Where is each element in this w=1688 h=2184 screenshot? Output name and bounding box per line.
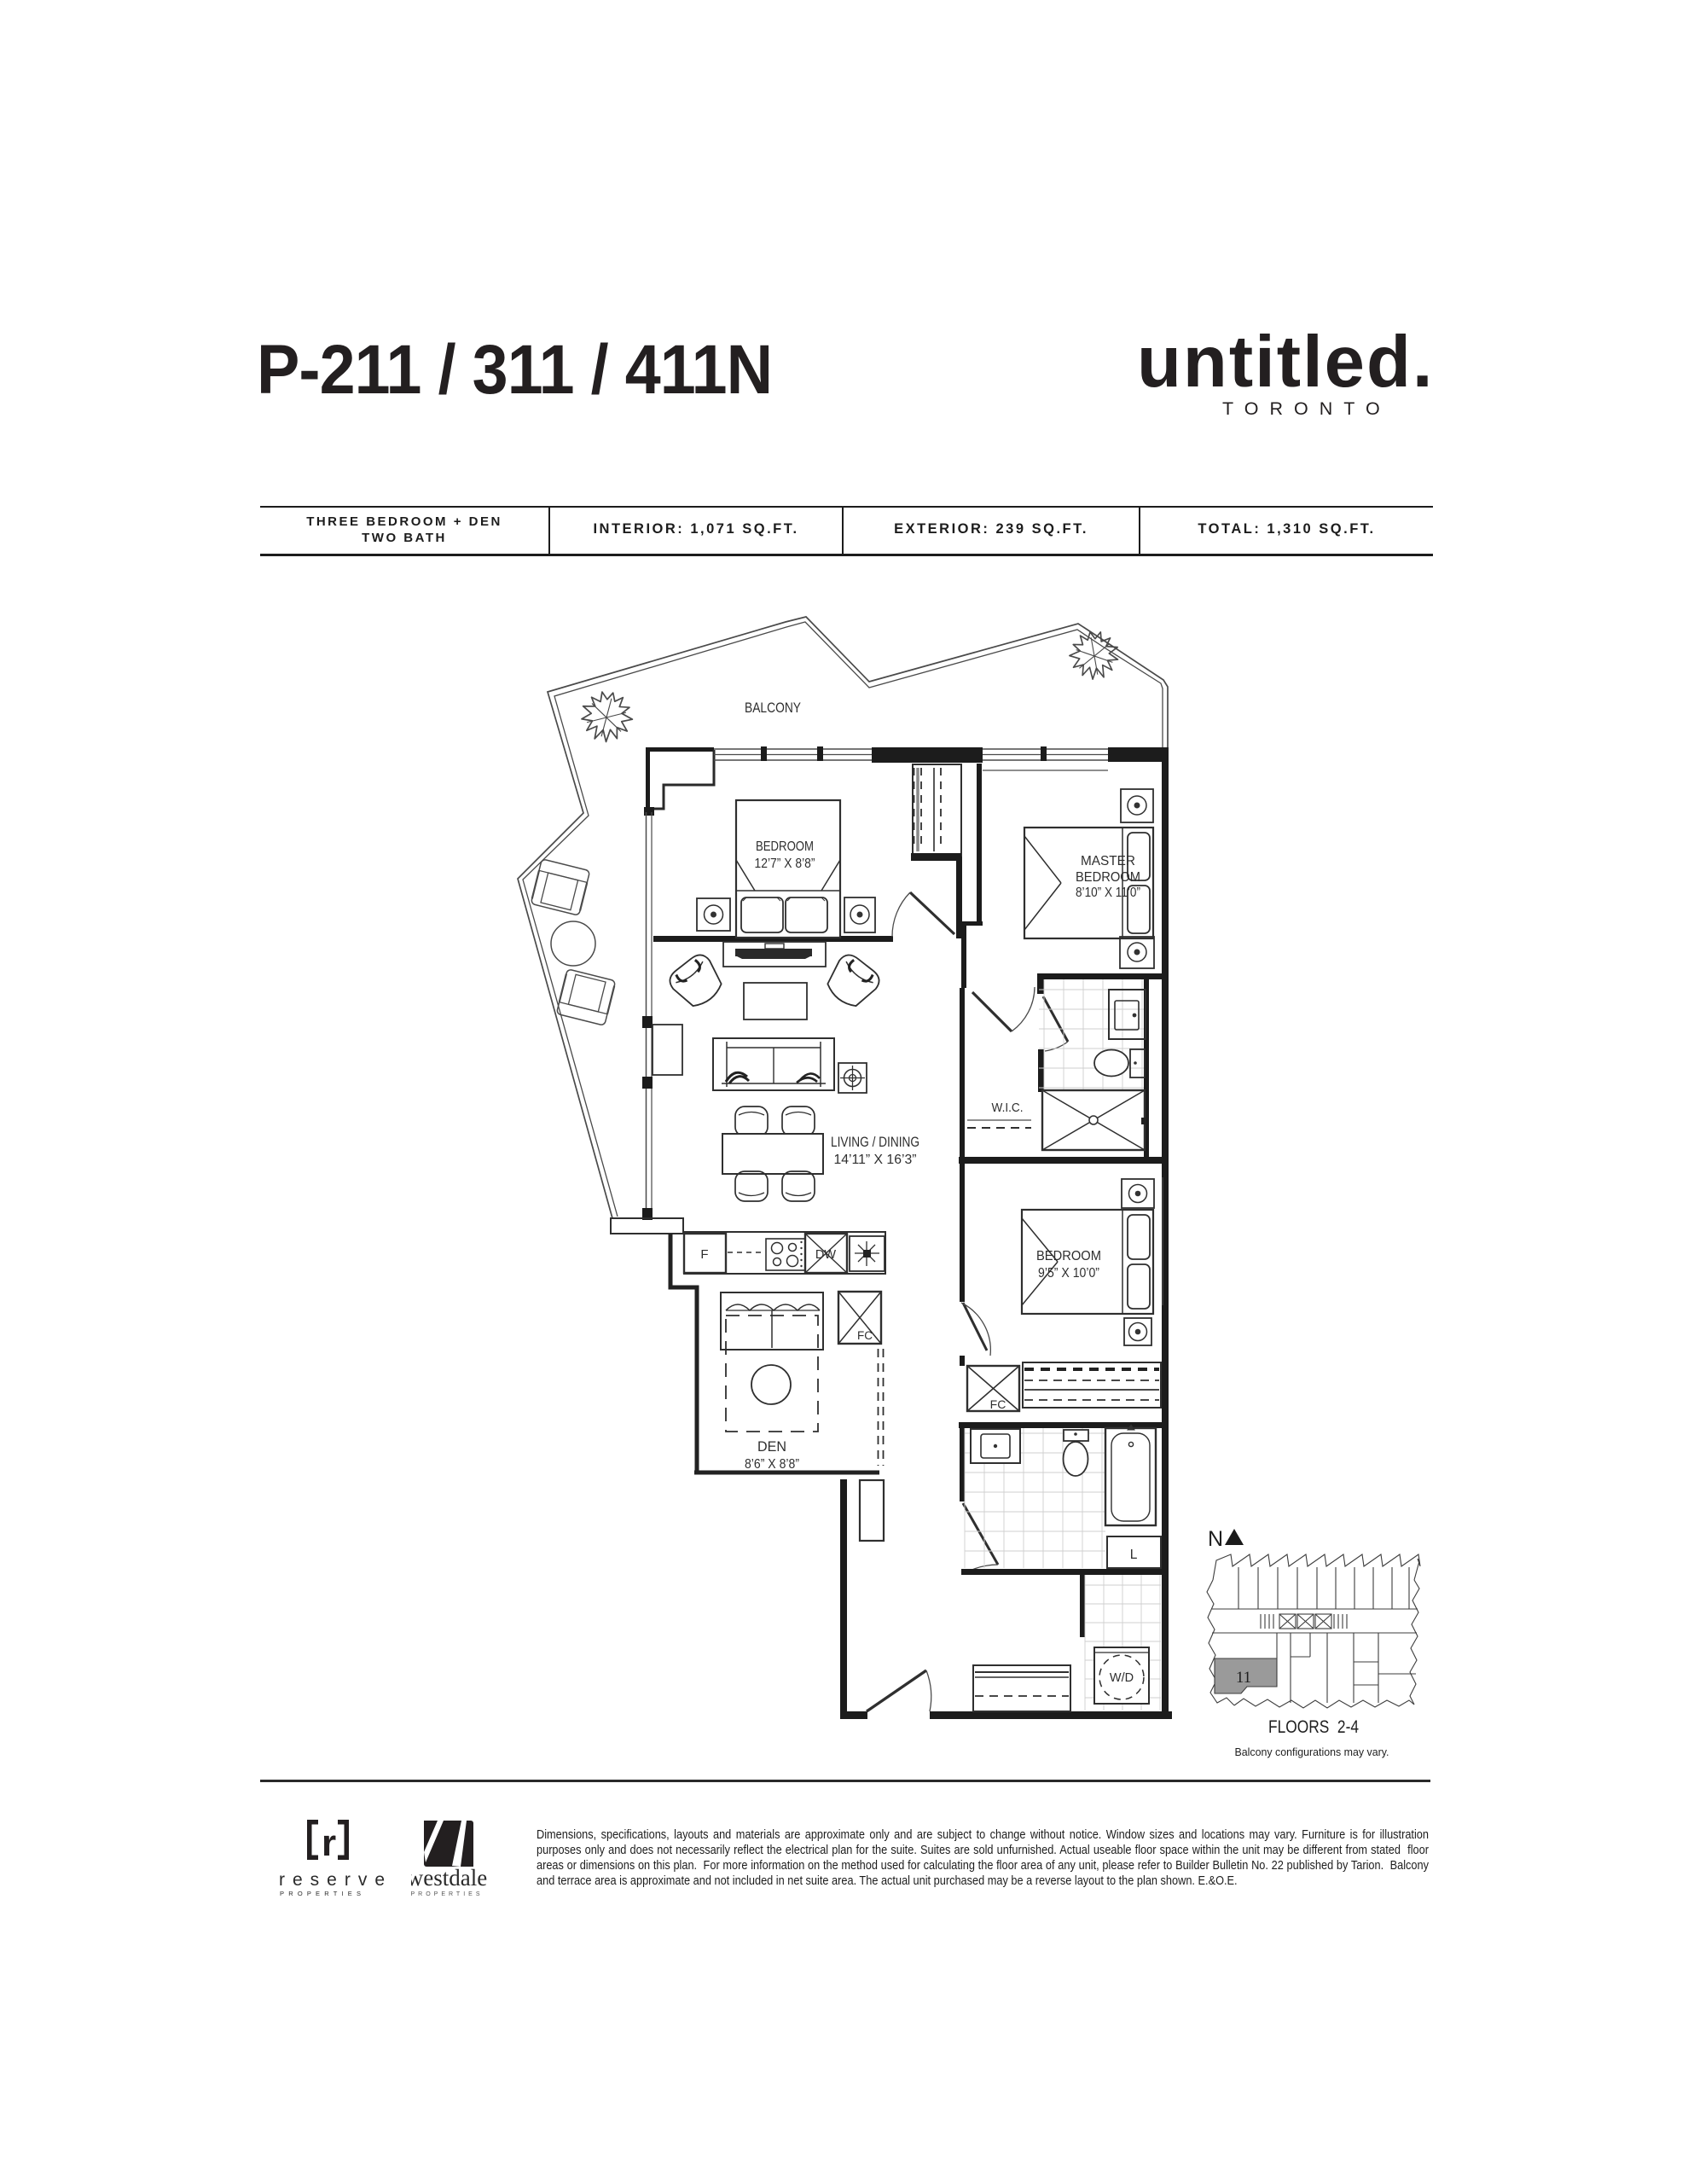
svg-text:LIVING / DINING: LIVING / DINING: [831, 1135, 919, 1150]
svg-text:11: 11: [1236, 1669, 1251, 1687]
svg-text:BEDROOM: BEDROOM: [1036, 1249, 1101, 1263]
svg-text:W.I.C.: W.I.C.: [992, 1101, 1024, 1115]
svg-text:reserve: reserve: [279, 1870, 390, 1890]
svg-text:FC: FC: [990, 1397, 1006, 1411]
svg-text:F: F: [700, 1247, 708, 1262]
svg-text:BEDROOM: BEDROOM: [1076, 870, 1140, 885]
svg-text:12’7” X 8’8”: 12’7” X 8’8”: [755, 857, 815, 871]
svg-text:8’6” X 8’8”: 8’6” X 8’8”: [745, 1457, 799, 1472]
svg-text:FLOORS 2-4: FLOORS 2-4: [1268, 1716, 1359, 1737]
svg-text:9’5” X 10’0”: 9’5” X 10’0”: [1038, 1266, 1099, 1281]
svg-text:8’10” X 11’0”: 8’10” X 11’0”: [1076, 886, 1140, 900]
svg-text:BALCONY: BALCONY: [745, 700, 801, 716]
svg-text:DEN: DEN: [757, 1439, 786, 1455]
svg-text:PROPERTIES: PROPERTIES: [411, 1891, 484, 1897]
svg-text:14’11” X 16’3”: 14’11” X 16’3”: [834, 1153, 917, 1167]
svg-text:PROPERTIES: PROPERTIES: [280, 1890, 365, 1897]
svg-text:MASTER: MASTER: [1081, 854, 1135, 868]
svg-text:N: N: [1208, 1527, 1223, 1551]
svg-text:W/D: W/D: [1110, 1671, 1134, 1685]
svg-text:L: L: [1130, 1548, 1138, 1562]
svg-text:BEDROOM: BEDROOM: [756, 839, 814, 854]
svg-text:DW: DW: [815, 1248, 836, 1262]
svg-text:r: r: [322, 1822, 336, 1864]
svg-text:FC: FC: [857, 1329, 873, 1342]
svg-text:westdale: westdale: [411, 1865, 487, 1891]
svg-text:Balcony configurations may var: Balcony configurations may vary.: [1235, 1745, 1389, 1758]
